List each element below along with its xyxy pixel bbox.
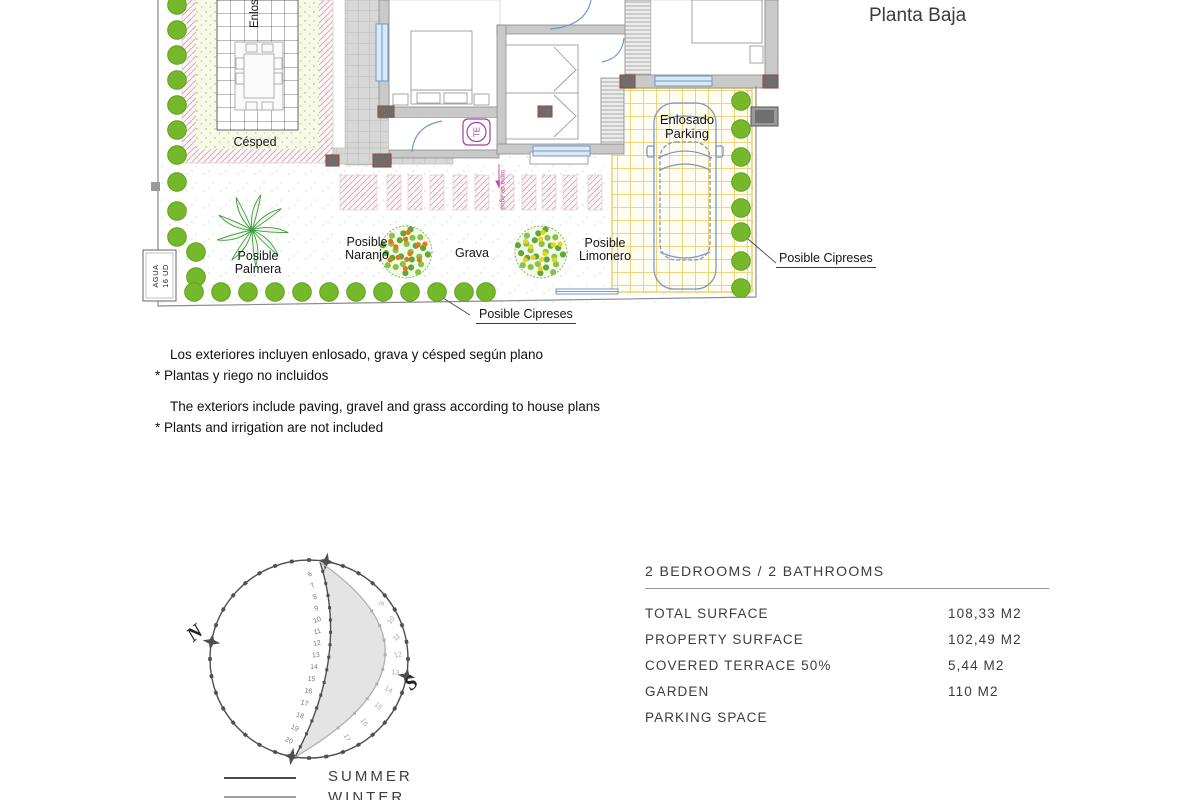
cypress-tree xyxy=(168,202,187,221)
hour-label: 12 xyxy=(394,651,403,659)
hour-label: 8 xyxy=(312,593,319,601)
circle-dot xyxy=(307,558,311,562)
summary-table: 2 BEDROOMS / 2 BATHROOMS TOTAL SURFACE 1… xyxy=(645,563,1049,725)
note-es-1: Los exteriores incluyen enlosado, grava … xyxy=(155,344,600,365)
note-en-2: * Plants and irrigation are not included xyxy=(155,417,600,438)
row-value: 5,44 M2 xyxy=(948,658,1049,673)
hour-dot xyxy=(310,719,313,722)
cypress-tree xyxy=(347,283,366,302)
cypress-tree xyxy=(732,279,751,298)
hour-label: 14 xyxy=(310,664,318,671)
circle-dot xyxy=(400,623,405,628)
cypress-tree xyxy=(168,21,187,40)
circle-dot xyxy=(341,750,346,755)
label-cipreses-bottom: Posible Cipreses xyxy=(476,308,576,324)
cypress-tree xyxy=(239,283,258,302)
hour-dot xyxy=(329,631,332,634)
hour-label: 16 xyxy=(304,687,313,695)
row-value: 108,33 M2 xyxy=(948,606,1049,621)
circle-dot xyxy=(208,657,212,661)
hour-dot xyxy=(378,624,381,627)
hour-label: 15 xyxy=(307,676,316,684)
hour-label: 11 xyxy=(392,633,402,643)
circle-dot xyxy=(214,623,219,628)
hour-label: 10 xyxy=(313,616,323,625)
cypress-tree xyxy=(732,120,751,139)
circle-dot xyxy=(324,754,328,758)
floor-title: Planta Baja xyxy=(869,5,966,27)
table-row: PARKING SPACE xyxy=(645,699,1049,725)
circle-dot xyxy=(214,691,219,696)
hour-label: 18 xyxy=(295,712,305,721)
hour-label: 6 xyxy=(306,571,314,579)
table-row: GARDEN 110 M2 xyxy=(645,673,1049,699)
cypress-tree xyxy=(168,228,187,247)
hour-label: 11 xyxy=(313,628,322,637)
hour-label: 15 xyxy=(372,701,383,712)
hour-dot xyxy=(370,609,373,612)
cypress-tree xyxy=(732,199,751,218)
cypress-tree xyxy=(455,283,474,302)
cypress-tree xyxy=(732,92,751,111)
row-label: TOTAL SURFACE xyxy=(645,606,948,621)
row-label: PARKING SPACE xyxy=(645,710,948,725)
hour-dot xyxy=(325,668,328,671)
pergola-beam xyxy=(453,175,467,210)
hour-dot xyxy=(353,712,356,715)
floor-plan: TE xyxy=(140,0,810,335)
hour-dot xyxy=(384,653,387,656)
circle-dot xyxy=(209,674,213,678)
pergola-beam xyxy=(408,175,422,210)
note-en-1: The exteriors include paving, gravel and… xyxy=(155,396,600,417)
hour-dot xyxy=(329,643,332,646)
hour-label: 17 xyxy=(300,699,309,708)
pergola-beam xyxy=(522,175,536,210)
hour-dot xyxy=(327,656,330,659)
row-value: 110 M2 xyxy=(948,684,1049,699)
hour-dot xyxy=(329,618,332,621)
hour-dot xyxy=(366,697,369,700)
cypress-tree xyxy=(187,243,206,262)
hour-label: 19 xyxy=(290,724,300,733)
hour-label: 9 xyxy=(379,601,387,607)
winter-legend-label: WINTER xyxy=(328,789,405,800)
cypress-tree xyxy=(168,0,187,14)
hour-label: 13 xyxy=(312,652,320,660)
circle-dot xyxy=(307,756,311,760)
row-label: PROPERTY SURFACE xyxy=(645,632,948,647)
cypress-tree xyxy=(168,46,187,65)
hour-dot xyxy=(337,726,340,729)
cypress-tree xyxy=(266,283,285,302)
label-enlosado-vertical: Enlosado xyxy=(249,0,263,36)
cypress-tree xyxy=(477,283,496,302)
hour-dot xyxy=(375,683,378,686)
hour-label: 9 xyxy=(313,605,320,613)
circle-dot xyxy=(404,640,408,644)
hour-dot xyxy=(381,668,384,671)
pergola-beam xyxy=(475,175,489,210)
hour-dot xyxy=(319,694,322,697)
agua-line1: AGUA xyxy=(151,264,161,288)
hour-dot xyxy=(383,639,386,642)
hour-label: 10 xyxy=(386,615,396,626)
cypress-tree xyxy=(293,283,312,302)
cypress-tree xyxy=(168,146,187,165)
label-limonero: Posible Limonero xyxy=(568,237,642,263)
hour-dot xyxy=(305,732,308,735)
hour-dot xyxy=(327,594,330,597)
row-label: COVERED TERRACE 50% xyxy=(645,658,948,673)
hour-label: 17 xyxy=(342,733,352,743)
hour-dot xyxy=(321,570,324,573)
cypress-tree xyxy=(401,283,420,302)
pergola-beam xyxy=(340,175,377,210)
circle-dot xyxy=(273,750,278,755)
pergola-beam xyxy=(387,175,401,210)
hour-dot xyxy=(315,706,318,709)
cypress-tree xyxy=(168,71,187,90)
beds-single xyxy=(506,45,578,139)
agua-label: AGUA 16 UD xyxy=(144,250,178,301)
circle-dot xyxy=(406,657,410,661)
winter-legend-line xyxy=(224,796,296,798)
cypress-tree xyxy=(185,283,204,302)
hour-label: 7 xyxy=(309,582,316,590)
circle-dot xyxy=(341,564,346,569)
table-row: PROPERTY SURFACE 102,49 M2 xyxy=(645,621,1049,647)
summary-header: 2 BEDROOMS / 2 BATHROOMS xyxy=(645,563,1049,589)
cypress-tree xyxy=(168,96,187,115)
cypress-tree xyxy=(732,148,751,167)
hour-dot xyxy=(299,745,302,748)
pergola-beam xyxy=(588,175,602,210)
hour-dot xyxy=(323,681,326,684)
label-grava: Grava xyxy=(447,247,497,260)
hour-dot xyxy=(328,606,331,609)
cypress-tree xyxy=(374,283,393,302)
hour-label: 12 xyxy=(313,640,322,648)
pergola-beam xyxy=(430,175,444,210)
garden-table-sketch xyxy=(235,42,283,110)
svg-text:TE: TE xyxy=(472,127,481,137)
label-cesped: Césped xyxy=(227,136,283,149)
row-value: 102,49 M2 xyxy=(948,632,1049,647)
label-palmera: Posible Palmera xyxy=(222,250,294,276)
circle-dot xyxy=(273,564,278,569)
circle-dot xyxy=(400,691,405,696)
agua-line2: 16 UD xyxy=(161,264,171,288)
sun-path-diagram: 6789101112131415161718192091011121314151… xyxy=(185,548,435,800)
hour-dot xyxy=(324,582,327,585)
label-cipreses-right: Posible Cipreses xyxy=(776,252,876,268)
cypress-tree xyxy=(732,173,751,192)
row-label: GARDEN xyxy=(645,684,948,699)
table-row: COVERED TERRACE 50% 5,44 M2 xyxy=(645,647,1049,673)
circle-dot xyxy=(290,559,294,563)
table-row: TOTAL SURFACE 108,33 M2 xyxy=(645,595,1049,621)
hour-label: 16 xyxy=(359,717,369,727)
summer-legend-line xyxy=(224,777,296,779)
cypress-tree xyxy=(732,252,751,271)
cypress-tree xyxy=(732,223,751,242)
cypress-tree xyxy=(320,283,339,302)
lemon-tree xyxy=(515,226,567,278)
cypress-tree xyxy=(168,173,187,192)
brochure-page: TE Nº 24 Planta Baja Enlosado Césped AGU xyxy=(0,0,1200,800)
hour-label: 13 xyxy=(391,669,400,677)
hour-label: 14 xyxy=(383,685,393,695)
summer-legend-label: SUMMER xyxy=(328,768,413,785)
pergola-beam xyxy=(563,175,577,210)
label-toma-agua: toma de agua xyxy=(498,164,506,216)
pergola-beam xyxy=(542,175,556,210)
cypress-tree xyxy=(168,121,187,140)
label-naranjo: Posible Naranjo xyxy=(334,236,400,262)
label-enlosado-parking: Enlosado Parking xyxy=(648,113,726,141)
cypress-tree xyxy=(212,283,231,302)
cypress-tree xyxy=(428,283,447,302)
hour-label: 20 xyxy=(284,736,294,746)
note-es-2: * Plantas y riego no incluidos xyxy=(155,365,600,386)
notes-block: Los exteriores incluyen enlosado, grava … xyxy=(155,344,600,438)
